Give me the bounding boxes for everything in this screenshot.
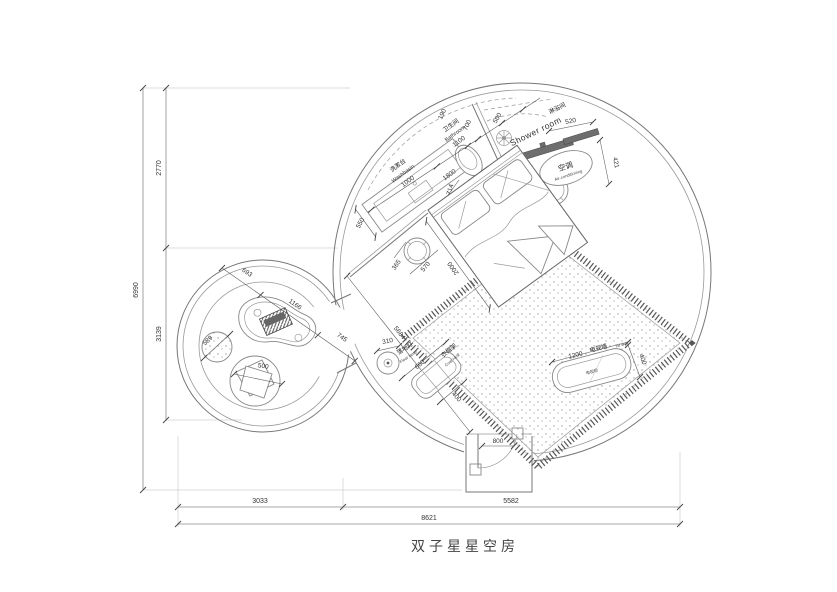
dim-bed-length: 2000 [446, 260, 460, 276]
shower-dashed-edge [484, 99, 552, 110]
floor-plan-drawing: 800 550 714 [0, 0, 837, 592]
dim-left-bottom: 3139 [156, 326, 163, 342]
dim-left-top: 2770 [156, 160, 163, 176]
shower-shelf [563, 128, 599, 144]
shower-label-zh: 淋浴间 [547, 101, 567, 116]
dim-counter-depth: 550 [355, 217, 366, 230]
kidney-table [236, 293, 320, 349]
door-handle-block [470, 464, 481, 475]
dim-bottom-right: 5582 [503, 498, 519, 505]
floor-plan-page: 800 550 714 [0, 0, 837, 592]
dim-ac-depth: 421 [611, 157, 620, 169]
dim-190: 190 [437, 108, 448, 121]
floor-lamp [374, 343, 402, 374]
dim-bottom-left: 3033 [252, 498, 268, 505]
dim-lamp: 310 [382, 337, 394, 346]
dim-sc-a: 693 [240, 267, 253, 279]
dim-ac-len: 520 [565, 117, 577, 126]
dim-door: 800 [493, 438, 504, 445]
dim-bottom-total: 8621 [421, 515, 437, 522]
dim-700: 700 [462, 119, 473, 132]
drawing-title: 双子星星空房 [411, 538, 519, 554]
dim-table-a: 365 [391, 258, 403, 271]
left-dimensions [140, 85, 169, 493]
bedside-table [394, 238, 438, 274]
dim-left-total: 6990 [133, 282, 140, 298]
